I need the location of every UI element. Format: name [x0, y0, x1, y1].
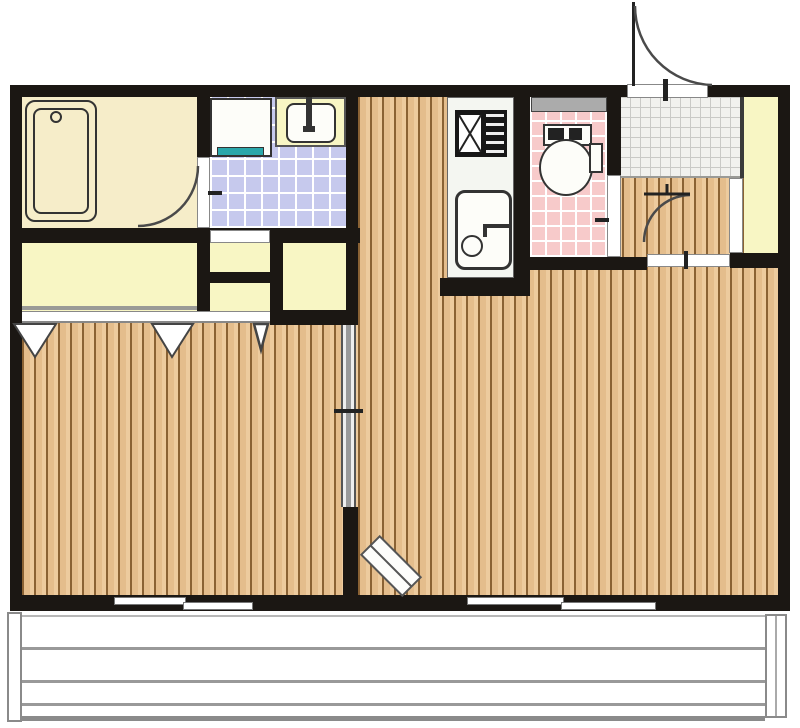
- sliding-door-handle: [334, 409, 363, 413]
- entry-door-leaf: [632, 2, 635, 86]
- toilet-door: [607, 175, 621, 257]
- closet-middle-upper: [210, 243, 270, 272]
- sink-faucet-spout: [483, 224, 487, 237]
- window-left-sash-1: [114, 597, 186, 605]
- sink-faucet-arm: [483, 224, 512, 228]
- closet-door-track: [22, 311, 270, 323]
- balcony-rail-2: [22, 680, 765, 683]
- toilet-bowl: [539, 139, 593, 196]
- balcony-rail-1: [22, 647, 765, 650]
- washroom-door-handle: [208, 191, 222, 195]
- bathtub-drain: [50, 111, 62, 123]
- toilet-tank-mark-1: [548, 128, 564, 140]
- wall-under-toilet: [514, 257, 647, 270]
- wall-toilet-right: [607, 85, 621, 175]
- stove-grill: [486, 114, 504, 153]
- closet-left: [22, 243, 197, 311]
- toilet-window: [531, 97, 607, 112]
- entry-threshold-tick: [663, 79, 668, 101]
- closet-front-gray-line: [22, 306, 197, 310]
- balcony-rail-top: [22, 615, 765, 617]
- balcony-rail-bottom: [22, 716, 765, 721]
- toilet-side-box: [589, 143, 603, 173]
- wall-bath-washroom: [197, 97, 210, 157]
- closet-middle-lower: [210, 283, 270, 311]
- genkan-entry-floor: [620, 97, 740, 178]
- balcony-rail-3: [22, 703, 765, 706]
- wall-below-shoe-cabinet: [730, 253, 790, 268]
- shoe-cabinet-door: [729, 178, 743, 253]
- stove-burner-box: [459, 115, 481, 152]
- outer-wall-top-left: [10, 85, 632, 97]
- shoe-cabinet: [744, 97, 778, 253]
- balcony-post-left: [7, 612, 22, 722]
- balcony-post-right-line: [775, 616, 777, 716]
- sink-drain: [461, 235, 483, 257]
- window-right-sash-2: [561, 602, 656, 610]
- toilet-door-handle: [595, 218, 609, 222]
- washing-machine-pan-lip: [217, 147, 264, 156]
- floor-plan-canvas: [0, 0, 800, 728]
- entry-door-swing: [635, 6, 712, 85]
- window-left-sash-2: [183, 602, 253, 610]
- hallway-threshold: [647, 254, 730, 267]
- closet-middle-divider-wall: [210, 272, 270, 283]
- toilet-tank-mark-2: [569, 128, 582, 140]
- wall-closet-bottom-right: [270, 310, 358, 325]
- outer-wall-left: [10, 85, 22, 610]
- outer-wall-right: [778, 85, 790, 610]
- vanity-faucet-base: [303, 126, 315, 132]
- hallway-threshold-tick: [684, 251, 688, 269]
- wall-stub-partition: [343, 507, 358, 599]
- bathtub-inner-rim: [33, 108, 89, 214]
- wall-closet-divider-1: [197, 228, 210, 323]
- wall-closet-top-band: [10, 228, 360, 243]
- wall-closet-divider-2: [270, 228, 283, 323]
- genkan-step-line: [620, 176, 740, 178]
- closet-upper-door: [210, 230, 270, 243]
- wall-counter-bottom: [440, 278, 530, 296]
- wall-washroom-kitchen: [346, 97, 358, 228]
- window-right-sash-1: [467, 597, 564, 605]
- closet-right: [283, 243, 346, 310]
- sliding-partition-door: [341, 325, 356, 507]
